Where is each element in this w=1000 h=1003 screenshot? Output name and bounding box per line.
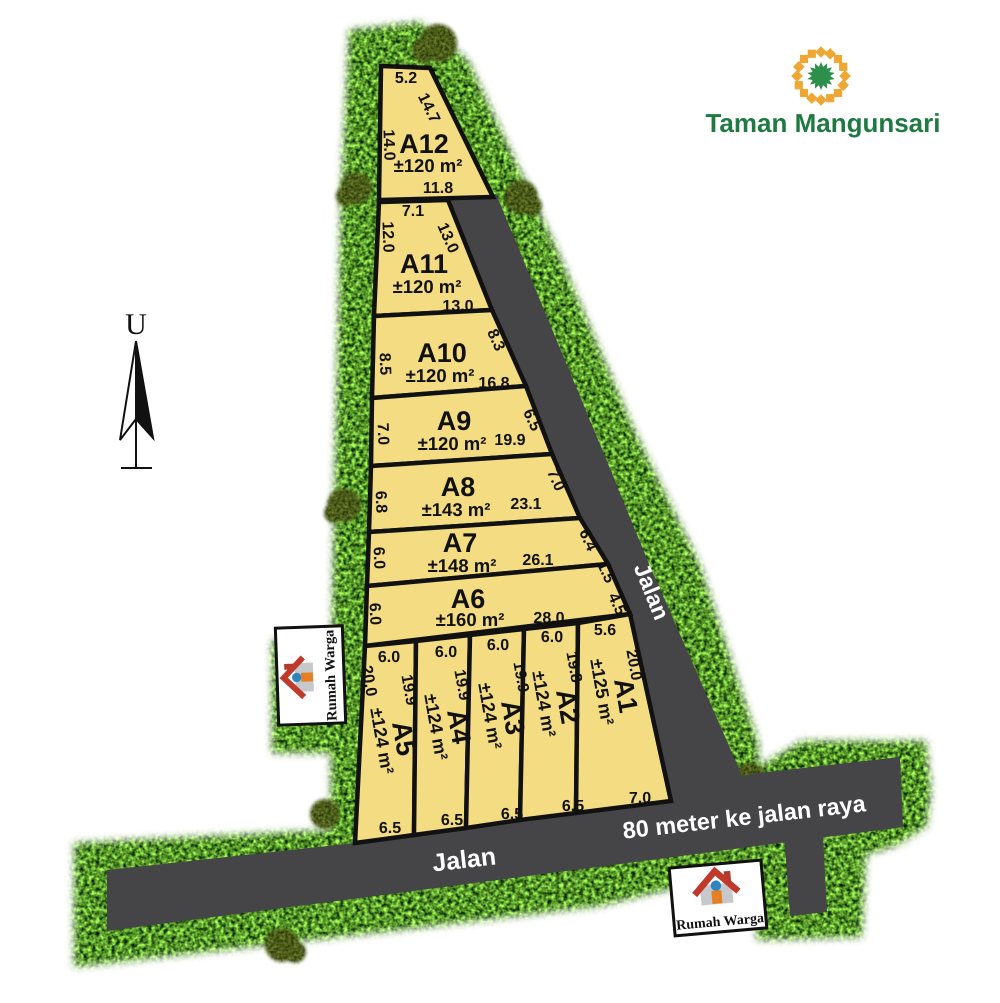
svg-text:±148 m²: ±148 m²: [428, 555, 497, 576]
svg-text:±120 m²: ±120 m²: [418, 433, 487, 454]
svg-text:±120 m²: ±120 m²: [393, 276, 462, 297]
svg-text:5.6: 5.6: [594, 622, 616, 639]
svg-text:26.1: 26.1: [522, 552, 553, 569]
svg-text:Rumah Warga: Rumah Warga: [321, 629, 340, 721]
svg-text:28.0: 28.0: [533, 610, 564, 627]
svg-text:±120 m²: ±120 m²: [406, 365, 475, 386]
svg-text:6.0: 6.0: [378, 649, 400, 666]
svg-text:6.5: 6.5: [562, 798, 584, 815]
svg-text:7.1: 7.1: [402, 203, 424, 220]
svg-text:11.8: 11.8: [423, 180, 453, 197]
svg-text:12.0: 12.0: [378, 221, 396, 253]
svg-text:23.1: 23.1: [510, 496, 541, 513]
svg-text:±120 m²: ±120 m²: [394, 155, 463, 176]
svg-text:U: U: [125, 308, 147, 341]
svg-text:A11: A11: [400, 249, 448, 279]
svg-text:6.0: 6.0: [370, 547, 388, 570]
svg-text:5.2: 5.2: [395, 70, 417, 87]
svg-text:16.8: 16.8: [478, 375, 509, 392]
svg-text:6.8: 6.8: [372, 491, 390, 514]
svg-text:±160 m²: ±160 m²: [436, 609, 505, 630]
svg-text:A8: A8: [441, 472, 476, 502]
svg-text:6.5: 6.5: [501, 806, 523, 823]
svg-text:13.0: 13.0: [442, 298, 473, 315]
svg-text:19.9: 19.9: [494, 432, 525, 449]
svg-text:6.5: 6.5: [441, 812, 463, 829]
svg-text:6.0: 6.0: [487, 637, 509, 654]
svg-text:Taman Mangunsari: Taman Mangunsari: [705, 108, 940, 138]
svg-text:8.5: 8.5: [376, 353, 394, 376]
svg-text:7.0: 7.0: [374, 423, 392, 446]
svg-text:6.5: 6.5: [379, 820, 401, 837]
svg-text:6.0: 6.0: [541, 629, 563, 646]
svg-text:7.0: 7.0: [629, 790, 651, 807]
svg-text:A9: A9: [437, 406, 472, 436]
svg-text:A10: A10: [417, 338, 467, 368]
svg-text:6.0: 6.0: [435, 644, 457, 661]
svg-text:±143 m²: ±143 m²: [422, 499, 491, 520]
svg-text:A7: A7: [443, 528, 478, 558]
svg-text:6.0: 6.0: [366, 603, 384, 626]
svg-text:14.0: 14.0: [379, 129, 397, 161]
